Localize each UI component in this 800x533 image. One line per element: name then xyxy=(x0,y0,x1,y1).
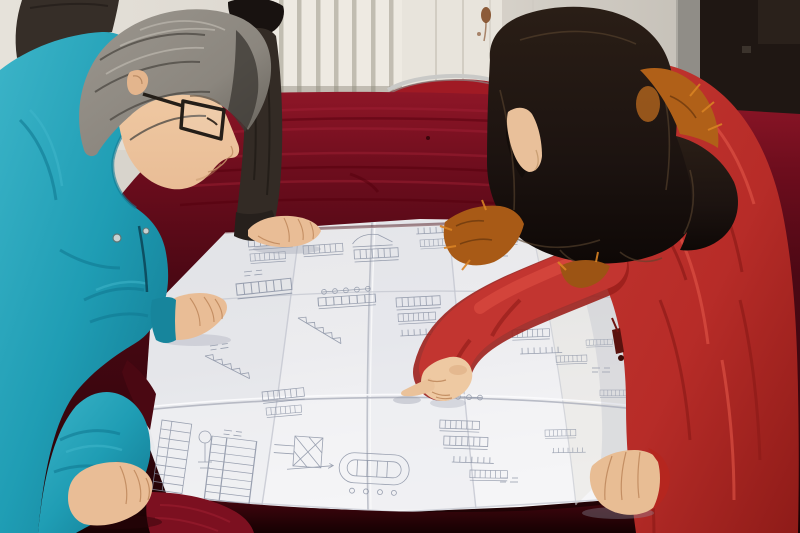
snap-button-2 xyxy=(143,228,149,234)
photo-scene xyxy=(0,0,800,533)
photo-canvas xyxy=(0,0,800,533)
door-latch-mark xyxy=(742,46,751,53)
snap-button xyxy=(113,234,121,242)
